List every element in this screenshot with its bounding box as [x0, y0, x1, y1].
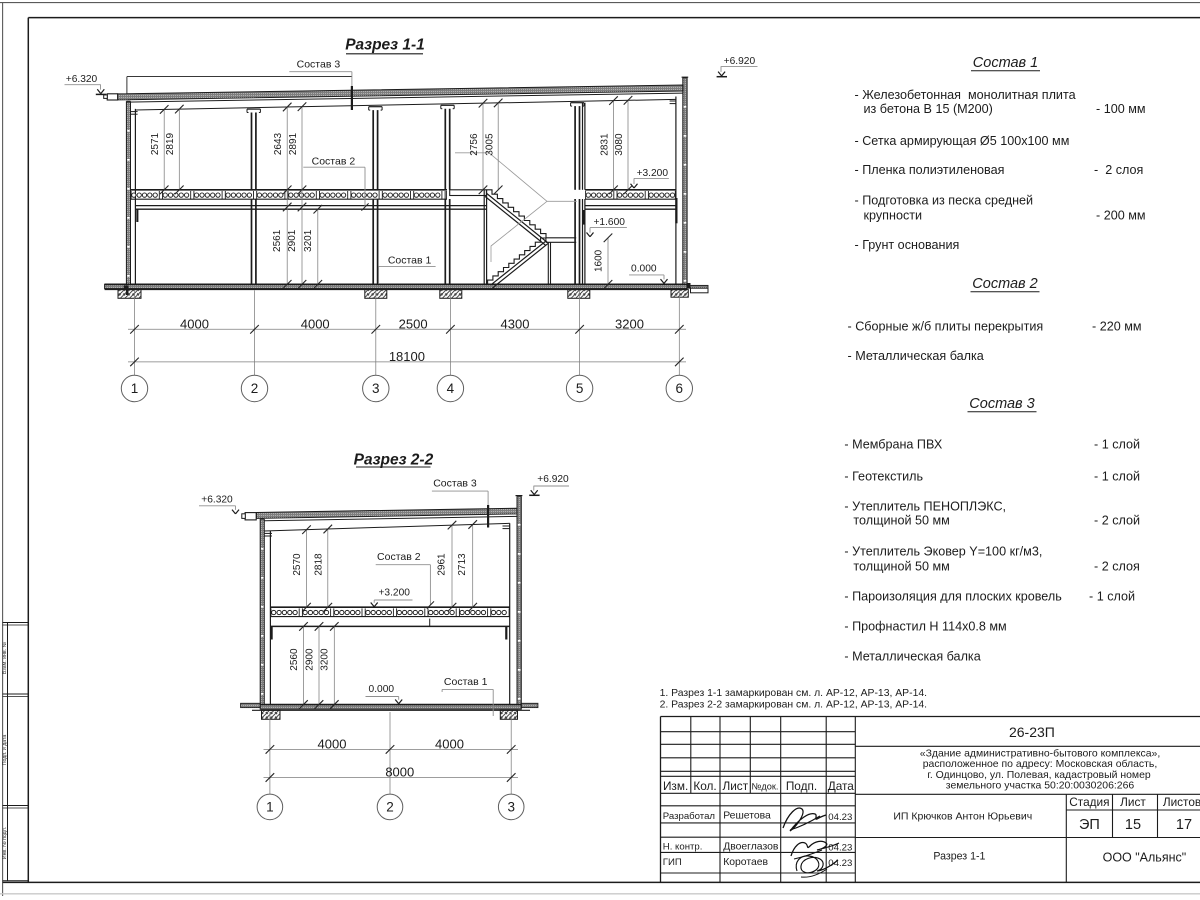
svg-text:земельного участка 50:20:00302: земельного участка 50:20:0030206:266	[946, 781, 1135, 792]
svg-text:4000: 4000	[435, 736, 464, 751]
svg-text:2900: 2900	[304, 648, 315, 671]
svg-text:расположенное по адресу: Моско: расположенное по адресу: Московская обла…	[923, 758, 1158, 770]
svg-text:3005: 3005	[484, 133, 495, 156]
svg-text:- Геотекстиль: - Геотекстиль	[844, 469, 923, 483]
svg-text:- 100 мм: - 100 мм	[1096, 102, 1146, 116]
svg-text:3: 3	[507, 800, 515, 815]
svg-text:2560: 2560	[289, 648, 300, 671]
svg-text:Лист: Лист	[1120, 795, 1146, 809]
svg-text:4300: 4300	[501, 316, 530, 331]
svg-text:3: 3	[372, 381, 380, 396]
svg-text:Н. контр.: Н. контр.	[663, 841, 703, 852]
svg-text:«Здание административно-бытово: «Здание административно-бытового комплек…	[920, 748, 1160, 760]
svg-text:Двоеглазов: Двоеглазов	[723, 841, 779, 852]
svg-text:Состав 2: Состав 2	[377, 551, 421, 563]
svg-text:3200: 3200	[320, 648, 331, 671]
svg-text:5: 5	[576, 381, 584, 396]
svg-text:№док.: №док.	[752, 782, 779, 792]
svg-text:+1.600: +1.600	[593, 217, 625, 228]
svg-text:1600: 1600	[594, 249, 605, 272]
svg-text:Состав 3: Состав 3	[969, 396, 1034, 412]
svg-text:Состав 2: Состав 2	[972, 276, 1037, 292]
svg-text:2818: 2818	[313, 553, 324, 576]
svg-text:1. Разрез 1-1 замаркирован см.: 1. Разрез 1-1 замаркирован см. л. АР-12,…	[660, 688, 927, 699]
svg-text:Разработал: Разработал	[663, 811, 715, 822]
svg-text:04.23: 04.23	[828, 843, 852, 854]
svg-text:+3.200: +3.200	[637, 168, 669, 179]
svg-text:- Мембрана ПВХ: - Мембрана ПВХ	[844, 438, 942, 452]
svg-text:ГИП: ГИП	[663, 857, 682, 868]
svg-text:0.000: 0.000	[369, 684, 395, 695]
svg-text:2756: 2756	[469, 133, 480, 156]
svg-text:+3.200: +3.200	[378, 587, 410, 598]
svg-text:04.23: 04.23	[828, 812, 852, 823]
svg-text:Состав 3: Состав 3	[433, 478, 477, 490]
svg-text:+6.320: +6.320	[201, 494, 233, 505]
svg-text:4000: 4000	[301, 316, 330, 331]
svg-text:- Сборные ж/б плиты перекрытия: - Сборные ж/б плиты перекрытия	[848, 320, 1044, 334]
svg-text:2643: 2643	[273, 132, 284, 155]
svg-text:- 200 мм: - 200 мм	[1096, 208, 1146, 222]
svg-text:- Подготовка из песка средней: - Подготовка из песка средней	[855, 194, 1034, 208]
svg-text:- 1 слой: - 1 слой	[1094, 438, 1140, 452]
svg-text:- 1 слой: - 1 слой	[1089, 589, 1135, 603]
svg-text:2570: 2570	[292, 553, 303, 576]
svg-text:Коротаев: Коротаев	[723, 857, 768, 868]
svg-text:Состав 1: Состав 1	[444, 676, 488, 688]
svg-text:17: 17	[1176, 817, 1192, 833]
svg-text:Кол.: Кол.	[693, 779, 716, 793]
svg-text:+6.920: +6.920	[537, 474, 569, 485]
svg-text:Состав 1: Состав 1	[973, 55, 1038, 71]
svg-text:2831: 2831	[599, 133, 610, 156]
svg-text:Решетова: Решетова	[723, 811, 771, 822]
svg-text:2561: 2561	[272, 229, 283, 252]
svg-text:15: 15	[1125, 817, 1141, 833]
svg-text:Листов: Листов	[1163, 795, 1200, 809]
svg-text:- Металлическая балка: - Металлическая балка	[848, 349, 984, 363]
svg-text:ООО "Альянс": ООО "Альянс"	[1103, 850, 1187, 864]
svg-text:из бетона В 15 (М200): из бетона В 15 (М200)	[864, 102, 993, 116]
svg-text:2891: 2891	[288, 132, 299, 155]
svg-text:Состав 3: Состав 3	[297, 59, 341, 71]
svg-text:2. Разрез 2-2 замаркирован см.: 2. Разрез 2-2 замаркирован см. л. АР-12,…	[660, 699, 927, 710]
svg-text:Разрез 1-1: Разрез 1-1	[345, 37, 425, 54]
svg-text:- 2 слоя: - 2 слоя	[1094, 163, 1143, 177]
svg-text:2961: 2961	[436, 553, 447, 576]
svg-text:26-23П: 26-23П	[1009, 724, 1055, 740]
svg-text:- Утеплитель Эковер Y=100 кг/м: - Утеплитель Эковер Y=100 кг/м3,	[844, 544, 1042, 558]
svg-text:2713: 2713	[457, 553, 468, 576]
svg-text:Подп. и дата: Подп. и дата	[2, 735, 8, 766]
svg-text:- Профнастил Н 114х0.8 мм: - Профнастил Н 114х0.8 мм	[844, 619, 1006, 633]
svg-text:2571: 2571	[150, 132, 161, 155]
svg-text:2: 2	[386, 800, 394, 815]
svg-text:Подп.: Подп.	[786, 779, 817, 793]
svg-text:6: 6	[676, 381, 684, 396]
svg-text:3201: 3201	[303, 229, 314, 252]
svg-text:1: 1	[131, 381, 139, 396]
svg-text:4: 4	[447, 381, 455, 396]
svg-text:18100: 18100	[389, 349, 425, 364]
svg-text:Разрез 2-2: Разрез 2-2	[354, 451, 434, 468]
svg-text:8000: 8000	[385, 764, 414, 779]
svg-text:04.23: 04.23	[828, 858, 852, 869]
svg-text:Разрез 1-1: Разрез 1-1	[933, 850, 985, 862]
svg-text:+6.320: +6.320	[66, 74, 98, 85]
svg-text:Инв. № подл.: Инв. № подл.	[2, 827, 8, 859]
svg-text:толщиной 50 мм: толщиной 50 мм	[853, 513, 949, 527]
svg-text:- 1 слой: - 1 слой	[1094, 469, 1140, 483]
svg-text:Лист: Лист	[722, 779, 748, 793]
svg-text:1: 1	[266, 800, 274, 815]
svg-text:2: 2	[251, 381, 259, 396]
svg-text:3200: 3200	[615, 316, 644, 331]
svg-text:- 2 слоя: - 2 слоя	[1094, 559, 1140, 573]
svg-text:Изм.: Изм.	[663, 779, 688, 793]
svg-text:- 220 мм: - 220 мм	[1092, 320, 1142, 334]
svg-text:Состав 2: Состав 2	[312, 156, 356, 168]
svg-text:ЭП: ЭП	[1079, 817, 1100, 833]
svg-text:4000: 4000	[318, 736, 347, 751]
svg-text:Состав 1: Состав 1	[388, 254, 432, 266]
svg-text:4000: 4000	[180, 316, 209, 331]
svg-text:ИП Крючков Антон Юрьевич: ИП Крючков Антон Юрьевич	[893, 810, 1032, 822]
svg-text:- Пароизоляция для плоских кро: - Пароизоляция для плоских кровель	[844, 589, 1062, 603]
svg-text:- Грунт основания: - Грунт основания	[855, 238, 960, 252]
svg-text:- Утеплитель ПЕНОПЛЭКС,: - Утеплитель ПЕНОПЛЭКС,	[844, 499, 1006, 513]
svg-text:г. Одинцово, ул. Полевая, када: г. Одинцово, ул. Полевая, кадастровый но…	[927, 770, 1151, 781]
svg-text:крупности: крупности	[864, 208, 923, 222]
svg-text:0.000: 0.000	[631, 263, 657, 274]
svg-text:Стадия: Стадия	[1069, 795, 1109, 809]
svg-text:2819: 2819	[165, 132, 176, 155]
svg-text:+6.920: +6.920	[724, 56, 756, 67]
svg-text:2500: 2500	[399, 316, 428, 331]
svg-text:3080: 3080	[614, 133, 625, 156]
svg-text:- Сетка армирующая Ø5 100х100: - Сетка армирующая Ø5 100х100 мм	[855, 134, 1070, 148]
svg-text:2901: 2901	[287, 229, 298, 252]
svg-text:- 2 слой: - 2 слой	[1094, 513, 1140, 527]
svg-text:- Железобетонная монолитная п: - Железобетонная монолитная плита	[855, 88, 1076, 102]
svg-text:- Металлическая балка: - Металлическая балка	[844, 649, 980, 663]
svg-text:- Пленка полиэтиленовая: - Пленка полиэтиленовая	[855, 163, 1005, 177]
svg-text:Дата: Дата	[828, 779, 855, 793]
svg-text:толщиной 50 мм: толщиной 50 мм	[853, 559, 949, 573]
svg-text:Взам. инв. №: Взам. инв. №	[2, 641, 8, 674]
